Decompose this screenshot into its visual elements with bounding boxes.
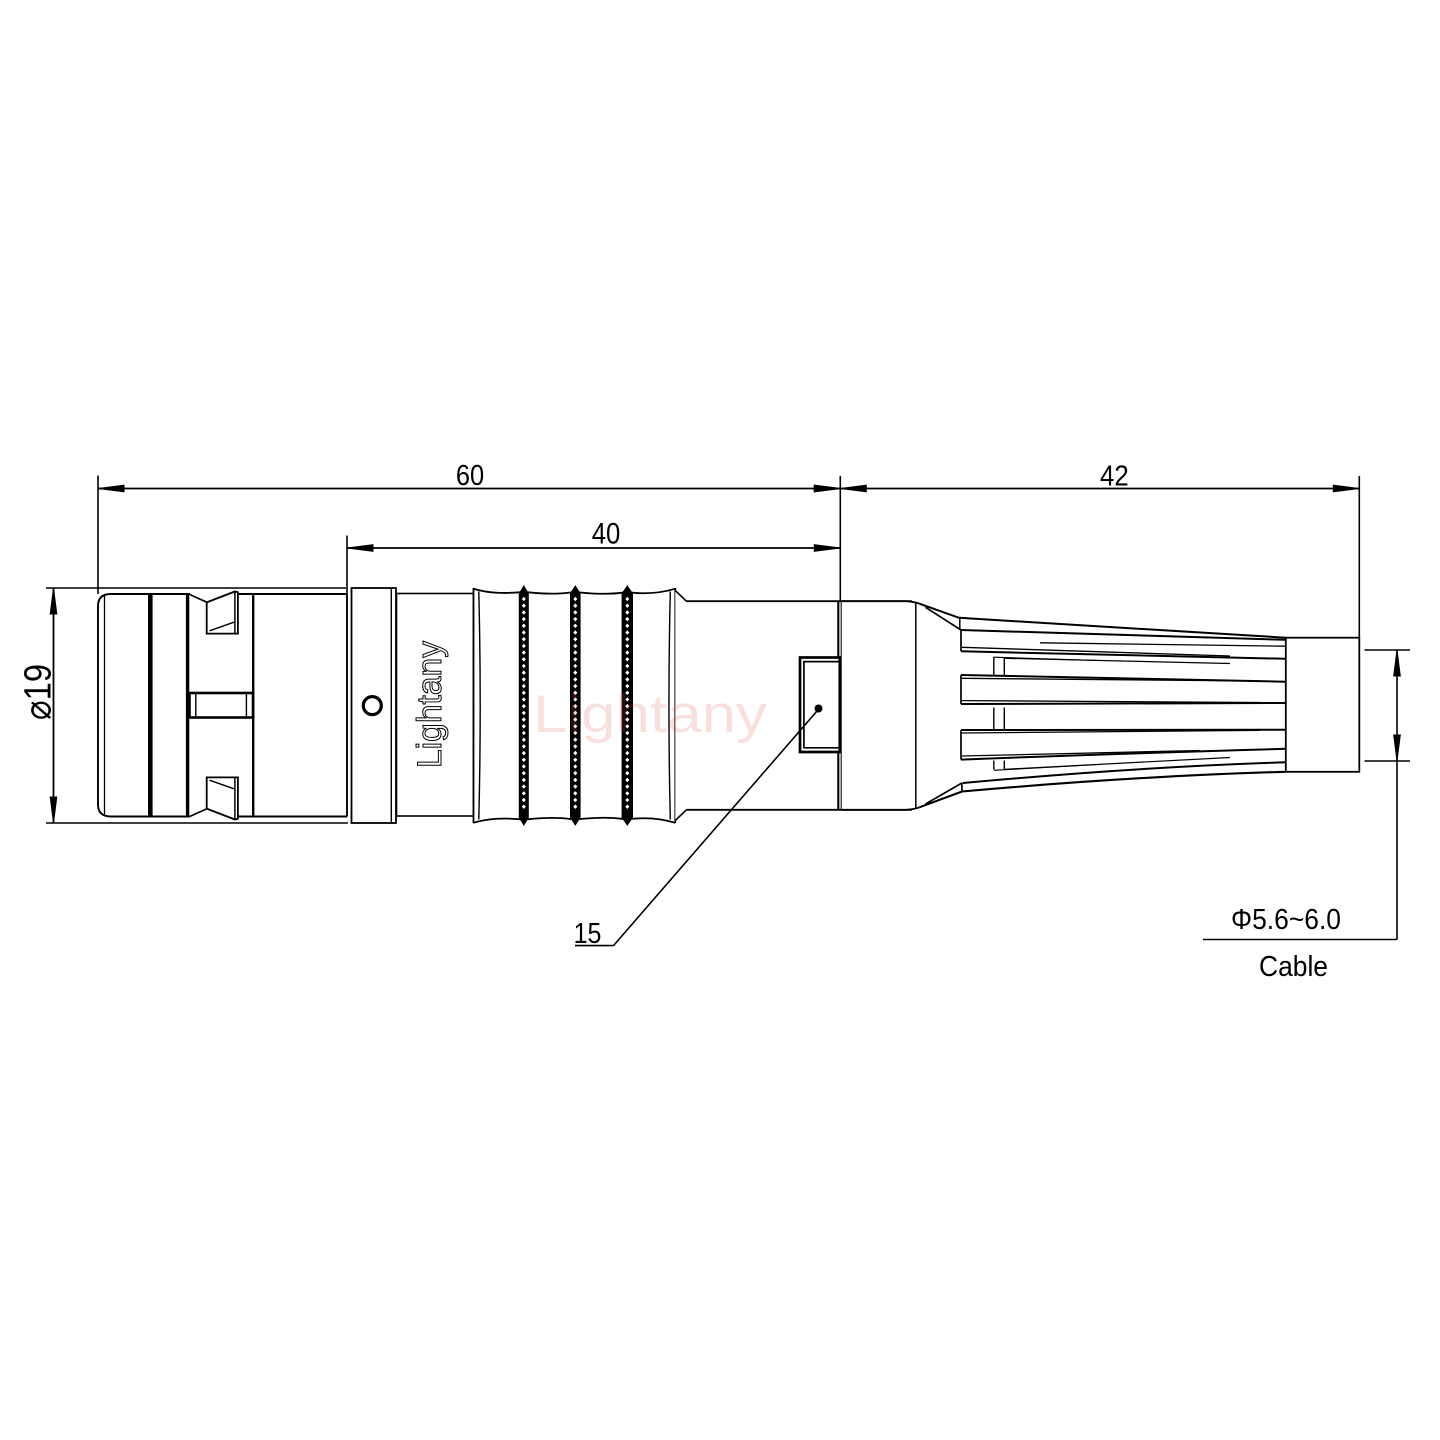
svg-text:Lightany: Lightany — [533, 685, 768, 744]
svg-text:Φ5.6~6.0: Φ5.6~6.0 — [1231, 904, 1341, 936]
svg-text:15: 15 — [574, 918, 602, 950]
svg-text:60: 60 — [456, 460, 484, 492]
svg-text:Cable: Cable — [1259, 951, 1328, 983]
svg-text:40: 40 — [592, 517, 621, 550]
svg-text:⌀19: ⌀19 — [18, 664, 60, 720]
svg-text:42: 42 — [1100, 461, 1129, 493]
svg-text:Lightany: Lightany — [411, 641, 449, 768]
